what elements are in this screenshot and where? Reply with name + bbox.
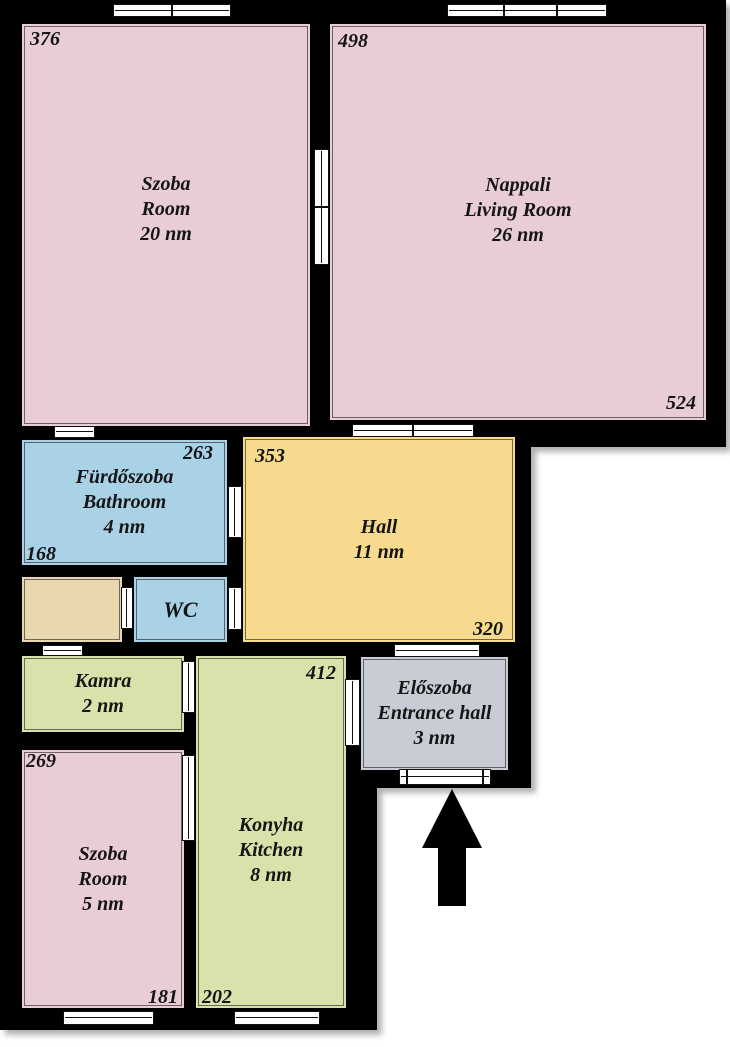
room-area: 8 nm	[250, 863, 292, 888]
room-hall: 353 320 Hall 11 nm	[243, 437, 515, 642]
room-area: 4 nm	[104, 515, 146, 540]
room-name-local: Szoba	[142, 172, 191, 197]
dimension-label: 320	[473, 618, 503, 640]
dimension-label: 269	[26, 750, 56, 772]
building-outline: 376 Szoba Room 20 nm 498 524 Nappali Liv…	[0, 0, 730, 1047]
door-hall-eloszoba	[394, 644, 480, 657]
room-area: 20 nm	[140, 222, 192, 247]
room-area: 26 nm	[492, 223, 544, 248]
room-bathroom: 263 168 Fürdőszoba Bathroom 4 nm	[22, 440, 227, 565]
room-name-en: Room	[142, 197, 191, 222]
room-closet-tan	[22, 577, 122, 642]
door-main-entrance	[399, 769, 491, 785]
room-area: 5 nm	[82, 892, 124, 917]
room-name-local: Konyha	[239, 813, 303, 838]
dimension-label: 353	[255, 445, 285, 467]
dimension-label: 524	[666, 392, 696, 414]
room-name-en: Bathroom	[83, 490, 166, 515]
entrance-arrow-icon	[421, 789, 483, 906]
room-area: 11 nm	[354, 540, 405, 565]
dimension-label: 376	[30, 28, 60, 50]
room-name-en: Kitchen	[239, 838, 303, 863]
room-name-local: Nappali	[485, 173, 551, 198]
room-name-en: Living Room	[464, 198, 571, 223]
dimension-label: 202	[202, 986, 232, 1008]
dimension-label: 181	[148, 986, 178, 1008]
room-name-local: Előszoba	[397, 676, 471, 701]
window-hall-nappali	[352, 424, 474, 437]
door-tanroom-wc	[121, 587, 133, 629]
room-name-en: Entrance hall	[378, 701, 492, 726]
door-szoba1-nappali	[314, 149, 329, 265]
room-name-local: WC	[163, 597, 197, 622]
room-szoba-5nm: 269 181 Szoba Room 5 nm	[22, 750, 184, 1008]
room-name-local: Szoba	[79, 842, 128, 867]
room-konyha-kitchen: 412 202 Konyha Kitchen 8 nm	[196, 656, 346, 1008]
room-area: 3 nm	[414, 726, 456, 751]
room-name-local: Hall	[361, 515, 398, 540]
room-nappali-living: 498 524 Nappali Living Room 26 nm	[330, 24, 706, 420]
room-area: 2 nm	[82, 694, 124, 719]
dimension-label: 498	[338, 30, 368, 52]
window-szoba2-bottom	[63, 1011, 154, 1025]
window-szoba1-top	[113, 4, 231, 17]
door-bathroom-hall	[228, 486, 242, 538]
dimension-label: 168	[26, 543, 56, 565]
door-wc-hall	[228, 587, 242, 630]
room-wc: WC	[134, 577, 227, 642]
window-kitchen-bottom	[234, 1011, 320, 1025]
door-szoba2-kitchen	[182, 755, 195, 841]
room-name-en: Room	[79, 867, 128, 892]
room-name-local: Kamra	[75, 669, 132, 694]
room-name-local: Fürdőszoba	[76, 465, 174, 490]
dimension-label: 412	[306, 662, 336, 684]
room-eloszoba-entrance-hall: Előszoba Entrance hall 3 nm	[361, 657, 508, 770]
room-kamra: Kamra 2 nm	[22, 656, 184, 732]
door-kitchen-eloszoba	[345, 679, 360, 746]
room-szoba-20nm: 376 Szoba Room 20 nm	[22, 24, 310, 426]
window-tanroom-bottom	[42, 645, 83, 656]
window-nappali-top	[447, 4, 607, 17]
door-kamra-kitchen	[182, 661, 195, 713]
window-bathroom-top	[54, 426, 95, 438]
dimension-label: 263	[183, 442, 213, 464]
floor-plan: 376 Szoba Room 20 nm 498 524 Nappali Liv…	[0, 0, 730, 1047]
